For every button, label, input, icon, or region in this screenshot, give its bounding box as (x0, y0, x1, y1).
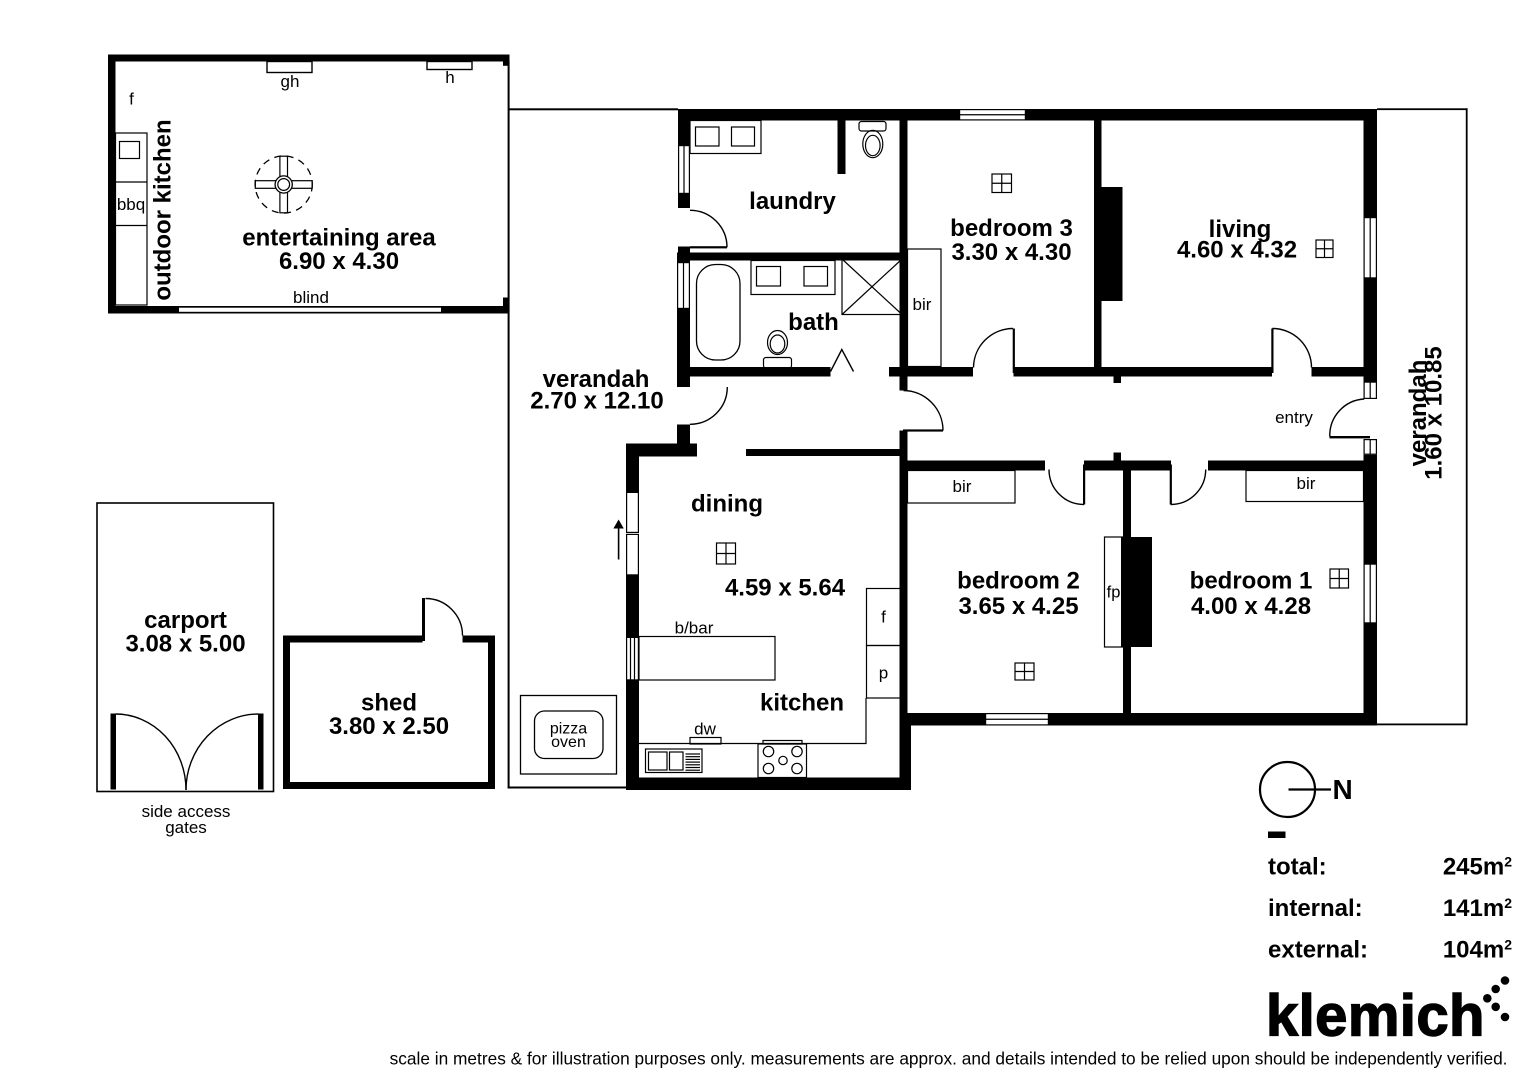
svg-text:f: f (881, 608, 886, 627)
svg-text:bath: bath (788, 309, 839, 336)
svg-text:internal:: internal: (1268, 895, 1363, 922)
svg-text:gates: gates (165, 818, 207, 837)
svg-text:kitchen: kitchen (760, 690, 844, 717)
svg-text:N: N (1333, 774, 1353, 805)
svg-text:scale in metres & for illustra: scale in metres & for illustration purpo… (390, 1049, 1508, 1069)
svg-text:blind: blind (293, 288, 329, 307)
svg-text:bedroom 1: bedroom 1 (1190, 568, 1313, 595)
svg-text:2.70 x 12.10: 2.70 x 12.10 (530, 388, 663, 415)
svg-text:bir: bir (953, 477, 972, 496)
svg-text:laundry: laundry (749, 188, 836, 215)
svg-text:3.30 x 4.30: 3.30 x 4.30 (951, 239, 1071, 266)
svg-text:klemich: klemich (1266, 984, 1485, 1049)
svg-text:3.08 x 5.00: 3.08 x 5.00 (125, 631, 245, 658)
svg-text:entry: entry (1275, 408, 1313, 427)
svg-text:external:: external: (1268, 937, 1368, 964)
svg-text:b/bar: b/bar (675, 619, 714, 638)
svg-text:245m2: 245m2 (1443, 854, 1512, 881)
svg-text:dw: dw (694, 720, 716, 739)
svg-text:outdoor kitchen: outdoor kitchen (150, 119, 177, 300)
svg-text:bedroom 2: bedroom 2 (957, 568, 1080, 595)
svg-text:bedroom 3: bedroom 3 (950, 215, 1073, 242)
svg-text:3.80 x 2.50: 3.80 x 2.50 (329, 713, 449, 740)
svg-text:141m2: 141m2 (1443, 895, 1512, 922)
svg-text:4.59 x 5.64: 4.59 x 5.64 (725, 575, 846, 602)
svg-text:dining: dining (691, 491, 763, 518)
svg-text:p: p (879, 664, 888, 683)
svg-text:fp: fp (1107, 584, 1121, 602)
svg-text:3.65 x 4.25: 3.65 x 4.25 (958, 593, 1078, 620)
svg-text:oven: oven (551, 734, 586, 751)
svg-text:f: f (129, 90, 134, 109)
svg-text:gh: gh (281, 72, 300, 91)
svg-text:h: h (445, 68, 454, 87)
svg-text:104m2: 104m2 (1443, 937, 1512, 964)
svg-text:1.60 x 10.85: 1.60 x 10.85 (1421, 346, 1448, 479)
svg-text:4.00 x 4.28: 4.00 x 4.28 (1191, 593, 1311, 620)
svg-text:bir: bir (1297, 474, 1316, 493)
svg-text:bir: bir (913, 295, 932, 314)
svg-text:4.60 x 4.32: 4.60 x 4.32 (1177, 237, 1297, 264)
svg-text:total:: total: (1268, 854, 1327, 881)
svg-text:6.90 x 4.30: 6.90 x 4.30 (279, 248, 399, 275)
svg-text:bbq: bbq (117, 195, 145, 214)
